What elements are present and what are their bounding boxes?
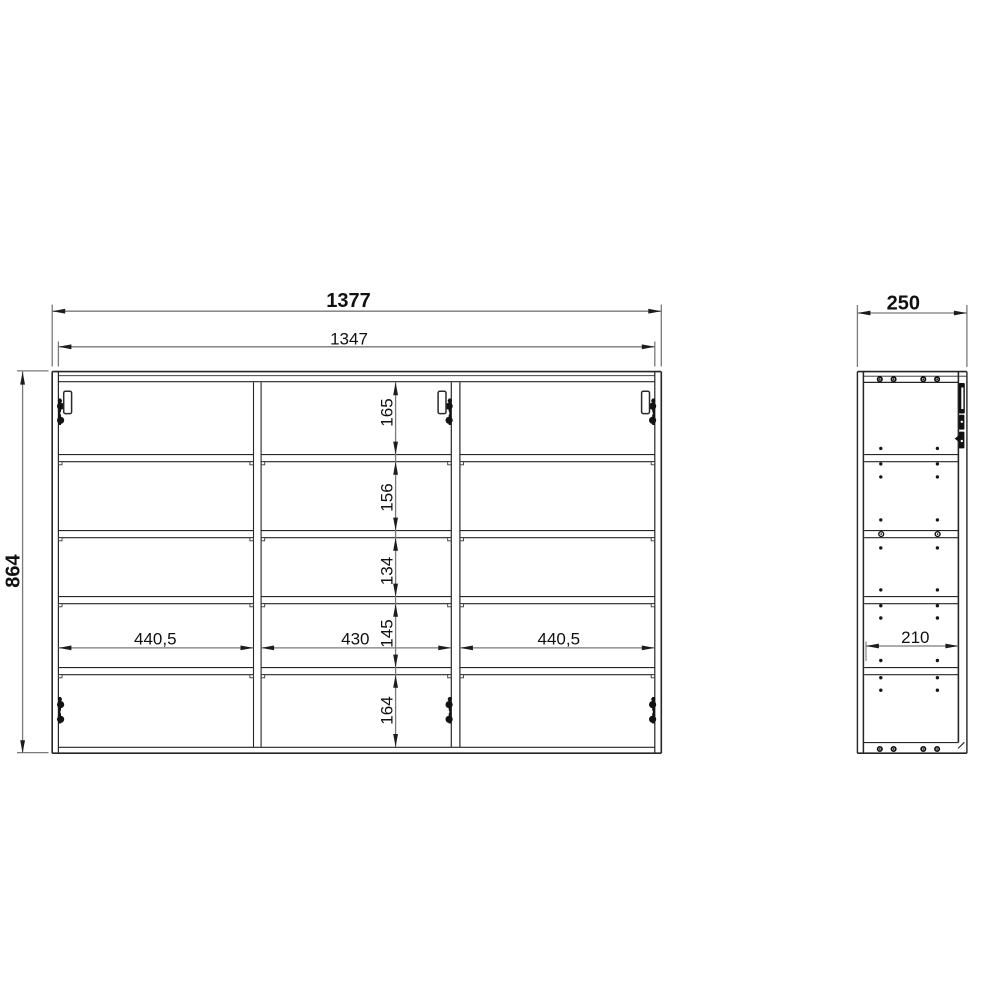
svg-text:430: 430 [341,630,369,649]
svg-text:145: 145 [377,619,396,647]
svg-text:864: 864 [3,553,25,587]
svg-text:210: 210 [901,628,929,647]
svg-text:250: 250 [887,292,920,314]
svg-text:164: 164 [377,696,396,724]
svg-text:1377: 1377 [326,290,371,312]
svg-text:134: 134 [377,557,396,585]
svg-text:1347: 1347 [330,329,368,348]
svg-text:165: 165 [377,398,396,426]
svg-text:156: 156 [377,483,396,511]
svg-text:440,5: 440,5 [538,630,581,649]
svg-text:440,5: 440,5 [134,630,177,649]
